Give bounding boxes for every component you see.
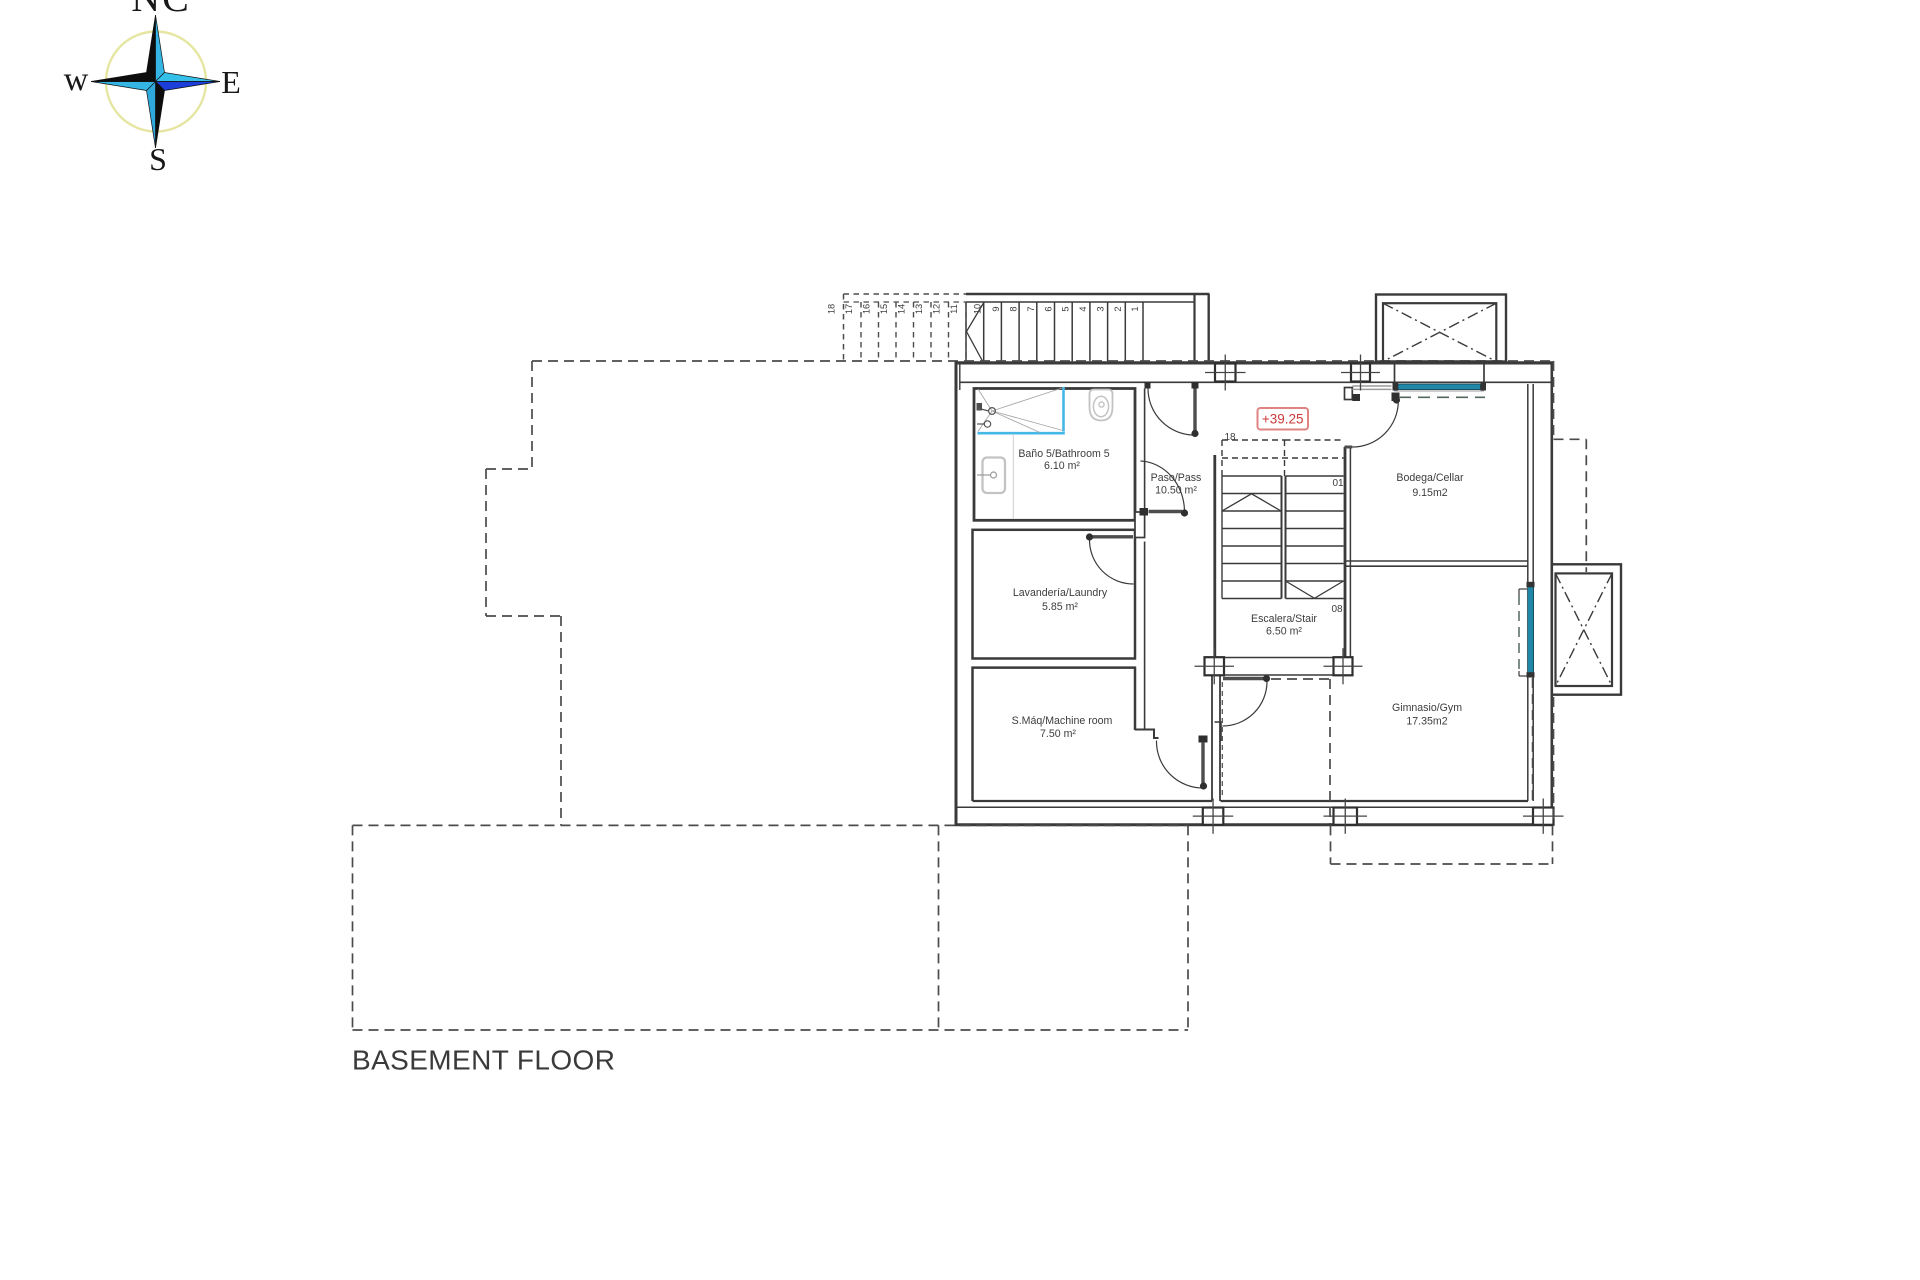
svg-text:6: 6	[1043, 306, 1053, 311]
svg-text:w: w	[64, 61, 89, 98]
svg-text:14: 14	[897, 304, 907, 314]
svg-text:S.Máq/Machine room: S.Máq/Machine room	[1012, 715, 1113, 727]
svg-text:10.50 m²: 10.50 m²	[1155, 485, 1197, 497]
svg-text:3: 3	[1096, 306, 1106, 311]
svg-text:6.50 m²: 6.50 m²	[1266, 626, 1302, 638]
svg-text:+39.25: +39.25	[1262, 412, 1304, 427]
svg-text:11: 11	[949, 304, 959, 314]
svg-text:7: 7	[1026, 306, 1036, 311]
svg-text:5: 5	[1061, 306, 1071, 311]
svg-text:08: 08	[1331, 604, 1343, 615]
svg-text:13: 13	[914, 304, 924, 314]
svg-text:4: 4	[1078, 306, 1088, 311]
svg-text:17.35m2: 17.35m2	[1406, 716, 1447, 728]
svg-text:1: 1	[1130, 306, 1140, 311]
svg-text:Escalera/Stair: Escalera/Stair	[1251, 613, 1317, 625]
svg-text:NC: NC	[131, 0, 191, 20]
svg-text:Paso/Pass: Paso/Pass	[1151, 472, 1202, 484]
svg-text:Lavandería/Laundry: Lavandería/Laundry	[1013, 587, 1108, 599]
svg-text:16: 16	[862, 304, 872, 314]
svg-text:6.10 m²: 6.10 m²	[1044, 460, 1080, 472]
svg-text:9.15m2: 9.15m2	[1412, 487, 1447, 499]
svg-text:Bodega/Cellar: Bodega/Cellar	[1396, 472, 1464, 484]
svg-text:E: E	[221, 64, 241, 100]
svg-text:17: 17	[844, 304, 854, 314]
svg-text:18: 18	[1224, 432, 1236, 443]
svg-text:Baño 5/Bathroom 5: Baño 5/Bathroom 5	[1018, 448, 1109, 460]
svg-text:7.50 m²: 7.50 m²	[1040, 728, 1076, 740]
svg-text:2: 2	[1113, 306, 1123, 311]
svg-text:10: 10	[973, 304, 983, 314]
svg-text:S: S	[149, 141, 167, 177]
svg-text:8: 8	[1009, 306, 1019, 311]
svg-text:18: 18	[827, 304, 837, 314]
svg-text:15: 15	[879, 304, 889, 314]
svg-text:9: 9	[991, 306, 1001, 311]
svg-text:5.85 m²: 5.85 m²	[1042, 601, 1078, 613]
svg-text:Gimnasio/Gym: Gimnasio/Gym	[1392, 702, 1462, 714]
svg-text:12: 12	[932, 304, 942, 314]
svg-text:BASEMENT FLOOR: BASEMENT FLOOR	[352, 1045, 615, 1076]
svg-text:01: 01	[1332, 478, 1344, 489]
